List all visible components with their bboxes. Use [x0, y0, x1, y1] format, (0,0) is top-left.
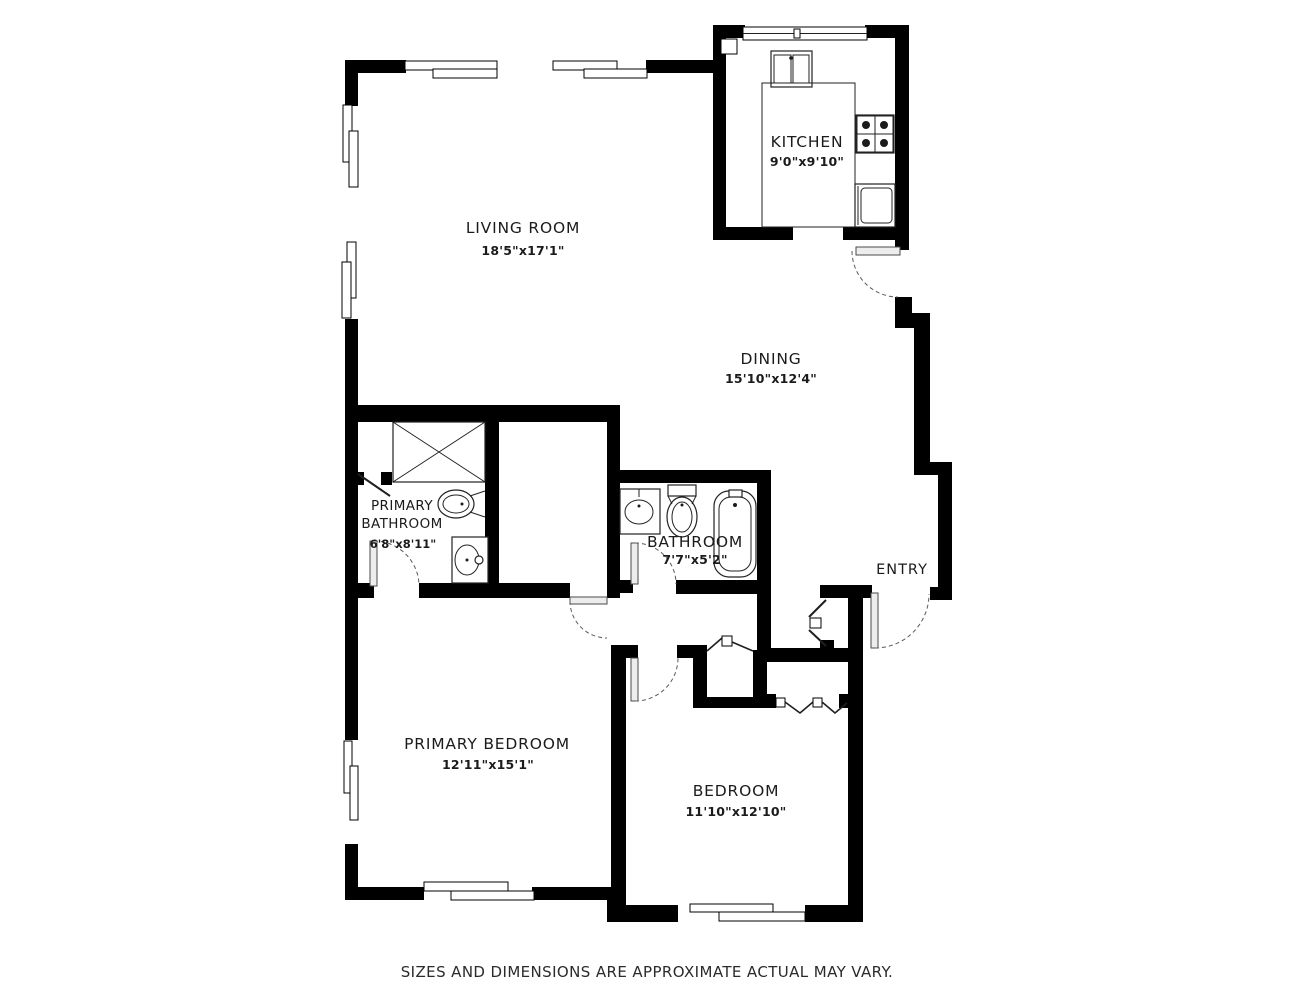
- window-icon: [719, 912, 805, 921]
- wall-segment: [532, 887, 609, 900]
- window-icon: [743, 27, 867, 40]
- room-label-entry: ENTRY: [876, 562, 928, 578]
- room-dims: 9'0"x9'10": [770, 154, 844, 169]
- window-icon: [451, 891, 534, 900]
- closet-bifold-icon: [776, 698, 847, 713]
- wall-segment: [607, 470, 771, 483]
- wall-notch: [721, 39, 737, 54]
- wall-segment: [757, 648, 848, 662]
- oven-icon: [855, 184, 895, 227]
- room-label-kitchen: KITCHEN 9'0"x9'10": [770, 133, 844, 169]
- fixtures: [393, 39, 895, 583]
- closet-bifold-icon: [707, 636, 753, 651]
- door-swing-icon: [852, 247, 900, 297]
- room-name: ENTRY: [876, 562, 928, 578]
- wall-segment: [607, 580, 633, 593]
- toilet-icon: [438, 490, 485, 518]
- door-swing-icon: [570, 597, 607, 638]
- window-icon: [424, 882, 508, 891]
- wall-segment: [611, 645, 638, 658]
- wall-segment: [914, 313, 930, 475]
- wall-segment: [345, 887, 424, 900]
- wall-segment: [345, 60, 358, 106]
- window-icon: [690, 904, 773, 912]
- labels: KITCHEN 9'0"x9'10" LIVING ROOM 18'5"x17'…: [361, 133, 928, 981]
- window-icon: [342, 262, 351, 318]
- disclaimer-text: SIZES AND DIMENSIONS ARE APPROXIMATE ACT…: [401, 963, 893, 981]
- window-icon: [350, 766, 358, 820]
- wall-segment: [419, 583, 570, 598]
- sink-icon: [452, 537, 488, 583]
- floor-plan: KITCHEN 9'0"x9'10" LIVING ROOM 18'5"x17'…: [0, 0, 1294, 1000]
- wall-segment: [767, 694, 776, 708]
- floor-plan-page: KITCHEN 9'0"x9'10" LIVING ROOM 18'5"x17'…: [0, 0, 1294, 1000]
- wall-segment: [848, 593, 863, 922]
- wall-segment: [611, 645, 626, 905]
- room-name: BEDROOM: [693, 782, 780, 800]
- wall-segment: [345, 405, 620, 422]
- window-icon: [584, 69, 647, 78]
- room-label-primary-bedroom: PRIMARY BEDROOM 12'11"x15'1": [404, 735, 570, 772]
- room-name: BATHROOM: [361, 516, 442, 532]
- room-name: PRIMARY BEDROOM: [404, 735, 570, 753]
- room-name: LIVING ROOM: [466, 219, 580, 237]
- wall-segment: [930, 587, 952, 600]
- wall-segment: [713, 227, 793, 240]
- wall-segment: [895, 25, 909, 250]
- wall-segment: [693, 697, 767, 708]
- sink-icon: [620, 489, 660, 534]
- toilet-icon: [667, 485, 697, 537]
- room-dims: 11'10"x12'10": [686, 804, 787, 819]
- room-dims: 18'5"x17'1": [481, 243, 564, 258]
- wall-segment: [713, 25, 726, 240]
- window-icon: [349, 131, 358, 187]
- room-name: BATHROOM: [647, 533, 743, 551]
- wall-segment: [693, 650, 707, 700]
- kitchen-sink-icon: [771, 51, 812, 87]
- wall-segment: [676, 580, 771, 594]
- room-dims: 15'10"x12'4": [725, 371, 817, 386]
- wall-segment: [607, 405, 620, 598]
- wall-segment: [345, 319, 358, 740]
- stove-icon: [856, 115, 894, 153]
- angled-nook: [809, 600, 826, 646]
- room-name: PRIMARY: [371, 498, 433, 514]
- wall-segment: [381, 472, 392, 485]
- room-label-bedroom: BEDROOM 11'10"x12'10": [686, 782, 787, 819]
- wall-segment: [646, 60, 713, 73]
- room-name: DINING: [740, 350, 801, 368]
- shower-icon: [393, 422, 485, 482]
- room-dims: 7'7"x5'2": [662, 552, 727, 567]
- window-icon: [433, 69, 497, 78]
- wall-segment: [622, 905, 678, 922]
- room-label-living-room: LIVING ROOM 18'5"x17'1": [466, 219, 580, 258]
- room-label-dining: DINING 15'10"x12'4": [725, 350, 817, 386]
- door-swing-icon: [631, 658, 678, 701]
- wall-segment: [805, 905, 863, 922]
- wall-segment: [843, 227, 909, 240]
- room-dims: 12'11"x15'1": [442, 757, 534, 772]
- room-label-primary-bathroom: PRIMARY BATHROOM 6'8"x8'11": [361, 498, 442, 551]
- door-swing-icon: [871, 593, 929, 648]
- wall-segment: [938, 462, 952, 600]
- room-name: KITCHEN: [771, 133, 844, 151]
- wall-segment: [820, 585, 872, 598]
- room-dims: 6'8"x8'11": [370, 537, 436, 551]
- wall-segment: [757, 470, 771, 592]
